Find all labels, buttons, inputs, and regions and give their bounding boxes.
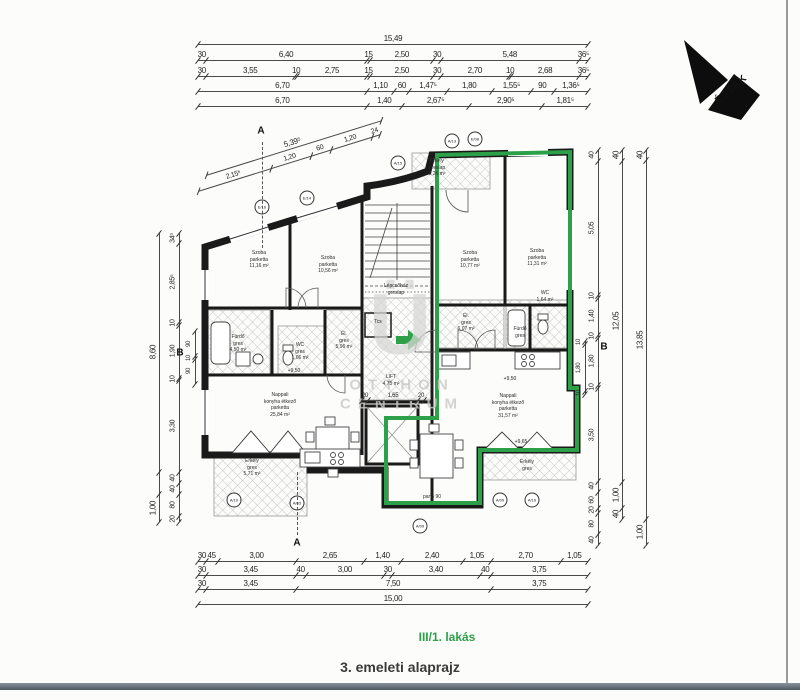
room-label: Él. gres 5,96 m² — [336, 331, 353, 351]
dimension-value: 60 — [398, 81, 406, 90]
dimension-value: 15,49 — [384, 34, 403, 43]
opening-marker: A/09 — [493, 493, 508, 508]
room-label: Tcs — [374, 319, 382, 326]
section-line — [262, 142, 263, 248]
dimension-value: 2,85⁵ — [170, 275, 177, 290]
page-frame-line — [786, 0, 788, 683]
dimension-line — [646, 150, 647, 545]
dimension-line — [198, 561, 588, 562]
room-label: Szoba parketta 11,31 m² — [527, 248, 546, 268]
section-letter: B — [600, 342, 607, 353]
dimension-value: 20 — [418, 393, 424, 399]
dimension-value: 2,75 — [325, 66, 339, 75]
dimension-value: 3,00 — [249, 551, 263, 560]
dimension-value: 45 — [207, 551, 215, 560]
dimension-value: 2,40 — [425, 551, 439, 560]
dimension-value: 12,05 — [612, 312, 621, 331]
dimension-value: 3,45 — [243, 565, 257, 574]
dimension-line — [198, 44, 588, 45]
room-label: WC 1,64 m² — [537, 290, 554, 303]
dimension-value: 40 — [481, 565, 489, 574]
dimension-value: 5,48 — [503, 50, 517, 59]
dimension-value: 1,55⁵ — [503, 81, 520, 90]
room-label: Erkély gres 5,71 m² — [244, 458, 261, 478]
dimension-value: 1,05 — [470, 551, 484, 560]
dimension-line — [198, 106, 588, 107]
dimension-line — [159, 233, 160, 522]
dimension-value: 80 — [589, 520, 596, 527]
section-letter: A — [293, 538, 300, 549]
opening-marker: A/16 — [525, 493, 540, 508]
section-letter: B — [176, 348, 183, 359]
apartment-label: III/1. lakás — [419, 630, 476, 644]
dimension-value: 20 — [170, 516, 177, 523]
dimension-value: 30 — [198, 565, 206, 574]
dimension-value: 30 — [198, 66, 206, 75]
dimension-value: 80 — [170, 502, 177, 509]
section-line — [297, 472, 298, 535]
dimension-value: 8,60 — [149, 345, 158, 359]
dimension-value: 90 — [538, 81, 546, 90]
opening-marker: E/14 — [300, 191, 315, 206]
dimension-value: 3,40 — [429, 565, 443, 574]
dimension-value: 10 — [589, 333, 596, 340]
dimension-value: 2,68 — [538, 66, 552, 75]
opening-marker: A/09 — [413, 519, 428, 534]
dimension-line — [198, 575, 588, 576]
dimension-value: 3,50 — [589, 428, 596, 440]
dimension-line — [198, 60, 588, 61]
dimension-value: 40 — [636, 151, 645, 159]
dimension-value: 1,00 — [149, 501, 158, 515]
level-mark: +9,50 — [504, 376, 517, 382]
dimension-value: 30 — [198, 50, 206, 59]
dimension-value: 3,75 — [532, 579, 546, 588]
dimension-value: 1,65 — [388, 393, 398, 399]
room-label: LIFT 4,75 m² — [383, 374, 400, 387]
dimension-value: 36⁵ — [578, 50, 589, 59]
opening-marker: A/13 — [445, 134, 460, 149]
dimension-value: 6,70 — [275, 96, 289, 105]
dimension-value: 30 — [433, 66, 441, 75]
room-label: Nappali konyha étkező parketta 25,84 m² — [264, 392, 296, 418]
level-mark: +9,50 — [288, 368, 301, 374]
dimension-value: 10 — [170, 320, 177, 327]
staircase — [365, 203, 430, 292]
dimension-line — [622, 150, 623, 519]
dimension-value: 40 — [612, 510, 621, 518]
room-label: Fürdő gres 4,50 m² — [230, 334, 247, 354]
dimension-value: 3,55 — [243, 66, 257, 75]
bottom-band — [0, 683, 800, 690]
dimension-value: 6,70 — [275, 81, 289, 90]
dimension-value: 10 — [186, 354, 192, 360]
dimension-value: 1,36⁵ — [562, 81, 579, 90]
dimension-value: 7,50 — [386, 579, 400, 588]
dimension-value: 30 — [384, 565, 392, 574]
dimension-value: 40 — [589, 152, 596, 159]
room-label: Szoba parketta 11,16 m² — [249, 250, 268, 270]
opening-marker: E/08 — [468, 132, 483, 147]
room-label: Szoba parketta 10,56 m² — [318, 255, 338, 275]
dimension-value: 3,75 — [532, 565, 546, 574]
dimension-value: 40 — [612, 151, 621, 159]
level-mark: +9,65 — [515, 439, 528, 445]
dimension-value: 1,00 — [612, 488, 621, 502]
dimension-value: 1,40 — [377, 96, 391, 105]
section-letter: A — [257, 126, 264, 137]
dimension-value: 30 — [198, 551, 206, 560]
dimension-value: 1,05 — [567, 551, 581, 560]
dimension-value: 1,10 — [373, 81, 387, 90]
room-label: WC gres 1,06 m² — [292, 342, 309, 362]
dimension-value: 10 — [589, 293, 596, 300]
dimension-value: 2,50 — [395, 66, 409, 75]
room-label: Nappali konyha étkező parketta 31,57 m² — [492, 393, 524, 419]
room-label: Erkély gres — [520, 459, 534, 472]
opening-marker: A/10 — [227, 493, 242, 508]
dimension-value: 30 — [433, 50, 441, 59]
dimension-value: 15,00 — [384, 594, 403, 603]
dimension-value: 40 — [589, 536, 596, 543]
dimension-value: 90 — [186, 341, 192, 347]
dimension-value: 60 — [589, 496, 596, 503]
dimension-value: 10 — [576, 339, 582, 345]
dimension-value: 2,70 — [468, 66, 482, 75]
dimension-value: 10 — [589, 383, 596, 390]
dimension-value: 20 — [362, 393, 368, 399]
dimension-value: 2,70 — [518, 551, 532, 560]
dimension-value: 3,00 — [338, 565, 352, 574]
dimension-value: 2,65 — [323, 551, 337, 560]
room-label: Lépcsőház greslap — [384, 283, 408, 296]
dimension-value: 3,30 — [170, 420, 177, 432]
dimension-line — [198, 589, 588, 590]
dimension-value: 36⁵ — [578, 66, 589, 75]
room-label: Fürdő gres — [513, 326, 526, 339]
dimension-value: 40 — [297, 565, 305, 574]
plan-title: 3. emeleti alaprajz — [340, 659, 460, 675]
room-label: Él. gres 6,07 m² — [458, 313, 475, 333]
room-label: Erkély greslap 3,26 m² — [429, 158, 446, 178]
dimension-value: 2,50 — [395, 50, 409, 59]
dimension-value: 30 — [198, 579, 206, 588]
dimension-value: 10 — [170, 375, 177, 382]
dimension-line — [585, 341, 586, 394]
dimension-line — [598, 150, 599, 545]
dimension-value: 20 — [589, 507, 596, 514]
dimension-value: 1,00 — [636, 525, 645, 539]
dimension-value: 2,67⁵ — [427, 96, 444, 105]
dimension-value: 1,40 — [375, 551, 389, 560]
dimension-value: 2,90⁵ — [497, 96, 514, 105]
dimension-value: 1,80 — [589, 355, 596, 367]
dimension-value: 13,85 — [636, 330, 645, 349]
dimension-value: 40 — [170, 485, 177, 492]
dimension-line — [198, 76, 588, 77]
dimension-value: 5,05 — [589, 222, 596, 234]
room-label: pano 90 — [423, 494, 441, 501]
dimension-line — [198, 604, 588, 605]
dimension-value: 10 — [576, 390, 582, 396]
dimension-value: 6,40 — [279, 50, 293, 59]
dimension-value: 1,47⁵ — [419, 81, 436, 90]
dimension-value: 1,40 — [589, 310, 596, 322]
dimension-value: 1,81⁵ — [556, 96, 573, 105]
dimension-value: 1,80 — [576, 362, 582, 372]
dimension-value: 3,45 — [243, 579, 257, 588]
dimension-line — [362, 400, 424, 401]
floor-plan-page: Ü OTTHON CENTRUM ÉSZAK III/1. lakás 3. e… — [0, 0, 800, 700]
dimension-value: 40 — [589, 483, 596, 490]
dimension-value: 40 — [170, 474, 177, 481]
dimension-value: 1,80 — [462, 81, 476, 90]
dimension-value: 90 — [186, 368, 192, 374]
dimension-value: 34⁵ — [170, 233, 177, 243]
opening-marker: A/15 — [391, 156, 406, 171]
room-label: Szoba parketta 10,77 m² — [460, 250, 480, 270]
